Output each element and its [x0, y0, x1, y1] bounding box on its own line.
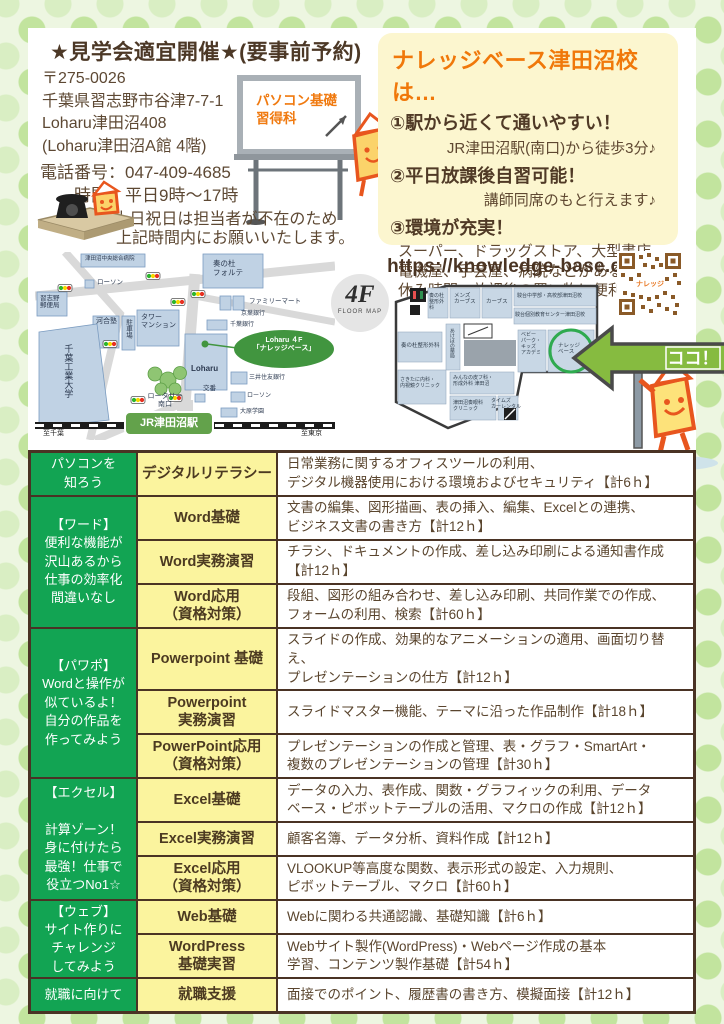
- course-desc: プレゼンテーションの作成と管理、表・グラフ・SmartArt・ 複数のプレゼンテ…: [277, 734, 695, 778]
- telephone-handset: [56, 194, 88, 204]
- floor-label-sakitani: さきたに内科・ 内視鏡クリニック: [400, 378, 440, 390]
- course-desc: Webに関わる共通認識、基礎知識【計6ｈ】: [277, 900, 695, 934]
- map-label-to-tokyo: 至東京: [301, 430, 322, 438]
- map-label-post-office: 習志野 郵便局: [40, 295, 60, 310]
- whiteboard-tray: [234, 154, 364, 160]
- content-panel: ★見学会適宜開催★(要事前予約) 〒275-0026 千葉県習志野市谷津7-7-…: [28, 28, 696, 994]
- course-name: デジタルリテラシー: [137, 452, 277, 496]
- map-label-to-chiba: 至千葉: [43, 430, 64, 438]
- map-label-hospital: 津田沼中央総合病院: [85, 256, 135, 262]
- floor-label-times: タイムズ カーレンタル: [491, 399, 521, 411]
- whiteboard-course-text: パソコン基礎 習得科: [256, 92, 337, 128]
- course-desc: スライドマスター機能、テーマに沿った作品制作【計18ｈ】: [277, 690, 695, 734]
- map-label-rotary: ロータリー 南口: [147, 393, 183, 409]
- restroom-male-icon: [420, 291, 423, 299]
- course-name: Powerpoint 実務演習: [137, 690, 277, 734]
- course-name: Powerpoint 基礎: [137, 628, 277, 691]
- floor-corridor: [464, 340, 516, 366]
- page-title: ★見学会適宜開催★(要事前予約): [50, 36, 362, 66]
- map-label-familymart: ファミリーマート: [249, 298, 301, 305]
- floor-label-akebono: あけぼの薬局: [448, 328, 454, 358]
- course-desc: 面接でのポイント、履歴書の書き方、模擬面接【計12ｈ】: [277, 978, 695, 1012]
- here-text: ココ！: [668, 349, 719, 368]
- course-name: Excel応用 （資格対策）: [137, 856, 277, 900]
- map-label-loharu: Loharu: [191, 364, 218, 373]
- restroom-icon: [410, 288, 426, 302]
- course-name: Excel基礎: [137, 778, 277, 822]
- building-chiba-bank: [207, 320, 227, 330]
- course-name: WordPress 基礎実習: [137, 934, 277, 978]
- table-row: 【ワード】 便利な機能が 沢山あるから 仕事の効率化 間違いなし Word基礎 …: [30, 496, 695, 540]
- course-desc: チラシ、ドキュメントの作成、差し込み印刷による通知書作成 【計12ｈ】: [277, 540, 695, 584]
- course-desc: データの入力、表作成、関数・グラフィックの利用、データ ベース・ピボットテーブル…: [277, 778, 695, 822]
- floor-label-sundai2: 駿台個別教育センター津田沼校: [515, 313, 585, 319]
- course-desc: 顧客名簿、データ分析、資料作成【計12ｈ】: [277, 822, 695, 856]
- table-row: 【ウェブ】 サイト作りに チャレンジ してみよう Web基礎 Webに関わる共通…: [30, 900, 695, 934]
- map-label-forte: 奏の杜 フォルテ: [213, 260, 243, 277]
- address-line1: 千葉県習志野市谷津7-7-1: [42, 91, 223, 114]
- map-label-chiba-tech: 千葉工業大学: [63, 344, 73, 398]
- mascot-leg: [682, 433, 688, 450]
- traffic-light-icon: [171, 299, 185, 306]
- table-row: 【パワポ】 Wordと操作が 似ているよ！ 自分の作品を 作ってみよう Powe…: [30, 628, 695, 691]
- map-label-keiyo-bank: 京葉銀行: [241, 311, 265, 318]
- course-desc: 段組、図形の組み合わせ、差し込み印刷、共同作業での作成、 フォームの利用、検索【…: [277, 584, 695, 628]
- floor-label-seikei-top: 奏の杜整形外科: [429, 294, 447, 312]
- wheelchair-icon: [410, 305, 420, 315]
- address-line3: (Loharu津田沼A館 4階): [42, 136, 223, 159]
- building-smbc: [231, 372, 247, 384]
- building-chiba-tech: [39, 324, 109, 428]
- map-label-smbc: 三井住友銀行: [249, 375, 285, 382]
- table-row: パソコンを 知ろう デジタルリテラシー 日常業務に関するオフィスツールの利用、 …: [30, 452, 695, 496]
- traffic-light-icon: [58, 285, 72, 292]
- category-cell-word: 【ワード】 便利な機能が 沢山あるから 仕事の効率化 間違いなし: [30, 496, 138, 628]
- table-row: 【エクセル】 計算ゾーン！ 身に付けたら 最強！仕事で 役立つNo1☆ Exce…: [30, 778, 695, 822]
- category-cell-ppt: 【パワポ】 Wordと操作が 似ているよ！ 自分の作品を 作ってみよう: [30, 628, 138, 779]
- building-ohara: [221, 408, 237, 417]
- course-name: PowerPoint応用 （資格対策）: [137, 734, 277, 778]
- map-label-ohara: 大原学園: [240, 409, 264, 416]
- course-desc: 文書の編集、図形描画、表の挿入、編集、Excelとの連携、 ビジネス文書の書き方…: [277, 496, 695, 540]
- map-label-lawson2: ローソン: [247, 393, 271, 400]
- category-cell-pc: パソコンを 知ろう: [30, 452, 138, 496]
- floor-badge-caption: FLOOR MAP: [331, 309, 389, 315]
- feature-1-heading: ①駅から近くて通いやすい！: [390, 113, 668, 135]
- restroom-female-icon: [413, 291, 416, 299]
- category-cell-excel: 【エクセル】 計算ゾーン！ 身に付けたら 最強！仕事で 役立つNo1☆: [30, 778, 138, 900]
- floor-badge-level: 4F: [331, 282, 389, 307]
- map-label-parking: 駐車場: [124, 319, 131, 339]
- mascot-eye: [109, 199, 113, 203]
- map-label-chiba-bank: 千葉銀行: [230, 322, 254, 329]
- category-cell-web: 【ウェブ】 サイト作りに チャレンジ してみよう: [30, 900, 138, 978]
- feature-3-heading: ③環境が充実！: [390, 218, 668, 240]
- floor-label-sundai1: 駿台中学部・高校部津田沼校: [517, 294, 582, 300]
- note-line2: 上記時間内にお願いいたします。: [116, 224, 354, 248]
- feature-2-heading: ②平日放課後自習可能！: [390, 166, 668, 188]
- park-trees-icon: [148, 367, 187, 396]
- telephone-dial: [66, 204, 78, 216]
- floor-label-kanade-eye: 津田沼奏眼科 クリニック: [453, 401, 483, 413]
- floor-label-baby: ベビー パーク・ キッズ アカデミ: [521, 333, 541, 357]
- mascot-eye: [678, 397, 684, 403]
- website-url[interactable]: https://knowledge-base.co/: [368, 256, 658, 278]
- postal-code: 〒275-0026: [42, 68, 223, 91]
- address-line2: Loharu津田沼408: [42, 113, 223, 136]
- mascot-eye: [100, 200, 104, 204]
- course-desc: Webサイト製作(WordPress)・Webページ作成の基本 学習、コンテンツ…: [277, 934, 695, 978]
- traffic-light-icon: [131, 397, 145, 404]
- map-label-station: JR津田沼駅: [125, 417, 213, 430]
- course-table: パソコンを 知ろう デジタルリテラシー 日常業務に関するオフィスツールの利用、 …: [28, 450, 696, 1014]
- feature-2-detail: 講師同席のもと行えます♪: [390, 189, 668, 210]
- mascot-sign-body: [652, 378, 694, 436]
- qr-code: ナレッジ: [617, 251, 683, 317]
- features-box: ナレッジベース津田沼校は… ①駅から近くて通いやすい！ JR津田沼駅(南口)から…: [378, 33, 678, 245]
- building-lawson: [85, 280, 94, 288]
- traffic-light-icon: [191, 291, 205, 298]
- floor-label-mens-curves: メンズ カーブス: [454, 293, 476, 306]
- floor-label-curves: カーブス: [486, 299, 508, 305]
- feature-1-detail: JR津田沼駅(南口)から徒歩3分♪: [390, 137, 668, 158]
- map-label-tower: タワー マンション: [141, 314, 176, 330]
- mascot-eye: [364, 147, 369, 152]
- floor-label-minna: みんなの皮フ科・ 形成外科 津田沼: [453, 376, 493, 388]
- traffic-light-icon: [146, 273, 160, 280]
- traffic-light-icon: [103, 341, 117, 348]
- floor-label-seikei-left: 奏の杜整形外科: [401, 343, 440, 349]
- category-cell-job: 就職に向けて: [30, 978, 138, 1012]
- features-title: ナレッジベース津田沼校は…: [392, 43, 668, 107]
- access-map: 津田沼中央総合病院 ローソン 習志野 郵便局 河合塾 駐車場 タワー マンション…: [35, 252, 335, 440]
- building-keiyo: [233, 296, 244, 310]
- course-desc: 日常業務に関するオフィスツールの利用、 デジタル機器使用における環境およびセキュ…: [277, 452, 695, 496]
- building-familymart: [220, 296, 231, 310]
- map-label-koban: 交番: [203, 385, 216, 392]
- floor-badge: 4F FLOOR MAP: [331, 274, 389, 332]
- mascot-leg: [361, 180, 364, 196]
- qr-center-label: ナレッジ: [617, 279, 683, 289]
- course-name: 就職支援: [137, 978, 277, 1012]
- course-name: Web基礎: [137, 900, 277, 934]
- building-lawson2: [231, 392, 245, 402]
- flyer-background: { "colors":{"accent_orange":"#f0780a","t…: [0, 0, 724, 1024]
- course-name: Word実務演習: [137, 540, 277, 584]
- course-desc: VLOOKUP等高度な関数、表示形式の設定、入力規則、 ピボットテーブル、マクロ…: [277, 856, 695, 900]
- course-desc: スライドの作成、効果的なアニメーションの適用、画面切り替え、 プレゼンテーション…: [277, 628, 695, 691]
- course-name: Word応用 （資格対策）: [137, 584, 277, 628]
- map-label-oval: Loharu ４F 「ナレッジベース」: [236, 337, 332, 353]
- course-name: Excel実務演習: [137, 822, 277, 856]
- address-block: 〒275-0026 千葉県習志野市谷津7-7-1 Loharu津田沼408 (L…: [42, 68, 223, 159]
- mascot-eye: [664, 399, 670, 405]
- table-row: 就職に向けて 就職支援 面接でのポイント、履歴書の書き方、模擬面接【計12ｈ】: [30, 978, 695, 1012]
- building-koban: [195, 394, 205, 402]
- course-name: Word基礎: [137, 496, 277, 540]
- map-label-lawson1: ローソン: [97, 279, 123, 286]
- phone-desk-illustration: [32, 178, 140, 244]
- map-label-kawai: 河合塾: [96, 318, 117, 326]
